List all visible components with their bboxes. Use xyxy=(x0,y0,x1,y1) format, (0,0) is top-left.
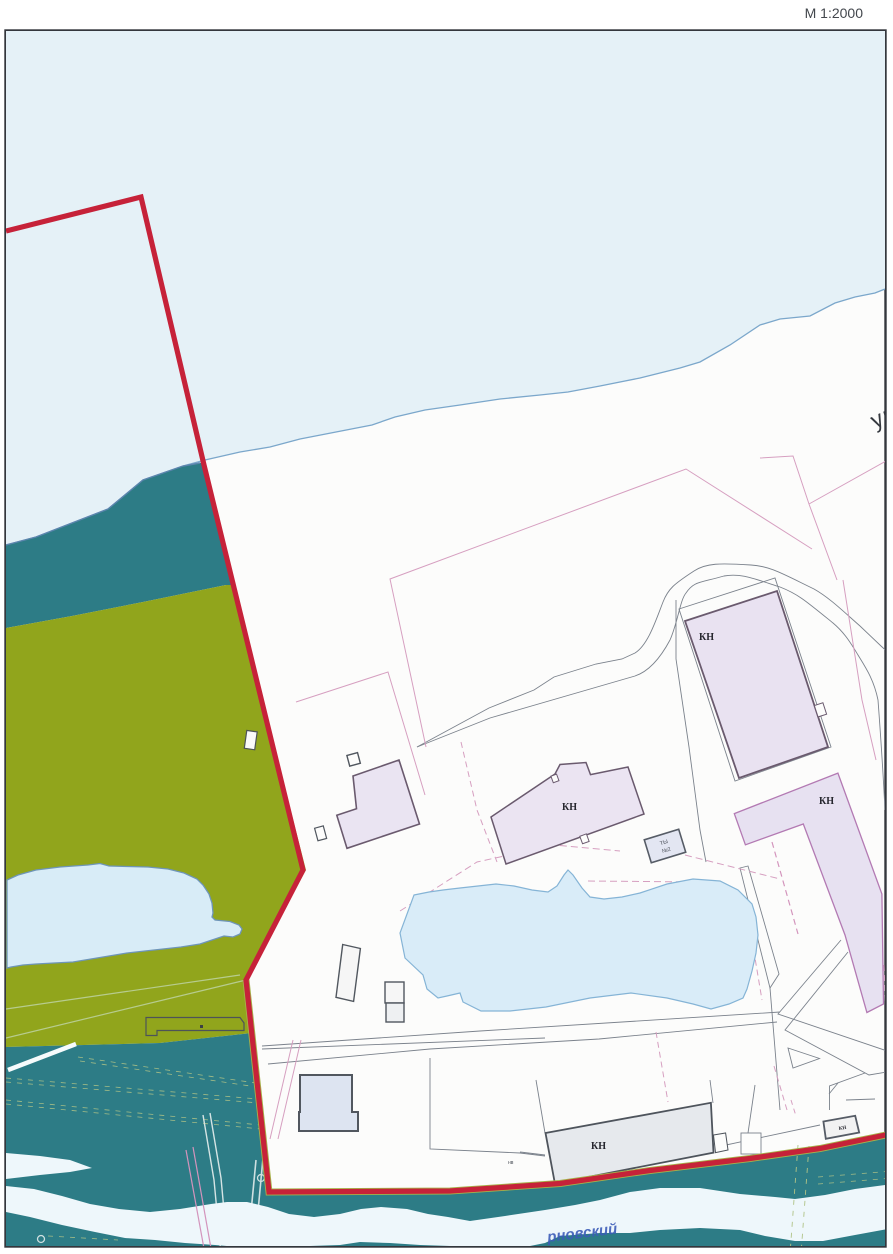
svg-text:КН: КН xyxy=(699,632,714,643)
svg-text:нв: нв xyxy=(508,1160,514,1166)
svg-text:КН: КН xyxy=(562,802,577,813)
svg-text:КН: КН xyxy=(591,1141,606,1152)
svg-text:М 1:2000: М 1:2000 xyxy=(805,5,864,21)
svg-text:КН: КН xyxy=(819,796,834,807)
